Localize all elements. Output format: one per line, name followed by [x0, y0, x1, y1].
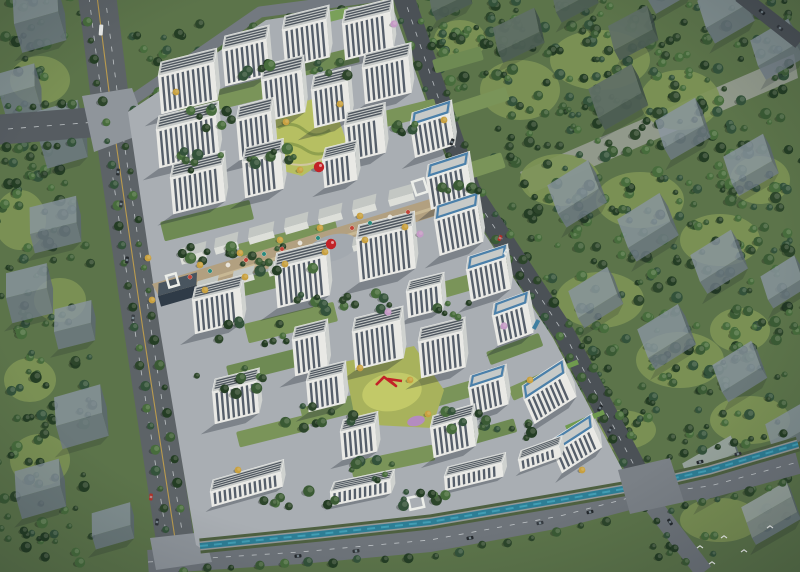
tree-highlight: [467, 27, 471, 31]
tree-highlight: [101, 97, 106, 102]
tree: [0, 199, 10, 209]
tree-highlight: [551, 275, 556, 280]
tree-highlight: [655, 407, 659, 411]
tree-highlight: [686, 52, 690, 56]
tree-highlight: [331, 409, 335, 413]
tree-highlight: [31, 174, 34, 177]
tree-highlight: [189, 254, 195, 260]
tree-highlight: [476, 26, 479, 29]
tree-highlight: [747, 307, 752, 312]
tree-highlight: [559, 143, 563, 147]
tree-highlight: [709, 390, 712, 393]
tree-highlight: [251, 252, 256, 257]
tree-highlight: [546, 80, 550, 84]
tree-highlight: [153, 336, 158, 341]
tree-highlight: [581, 344, 584, 347]
tree-highlight: [189, 107, 194, 112]
tree-highlight: [592, 16, 595, 19]
tree-highlight: [5, 143, 10, 148]
tree-highlight: [529, 131, 532, 134]
tree-highlight: [44, 423, 48, 427]
tree-highlight: [12, 159, 17, 164]
tree-highlight: [46, 142, 50, 146]
tree-highlight: [531, 122, 536, 127]
tree-highlight: [7, 514, 10, 517]
tree-highlight: [579, 152, 583, 156]
tree-highlight: [259, 562, 264, 567]
tree-highlight: [591, 347, 596, 352]
tree-highlight: [231, 251, 234, 254]
tree-highlight: [587, 337, 591, 341]
tree-highlight: [18, 202, 22, 206]
tree-highlight: [519, 103, 523, 107]
tree-highlight: [202, 257, 206, 261]
tree-highlight: [552, 299, 557, 304]
tree-highlight: [90, 38, 93, 41]
tree-highlight: [3, 495, 8, 500]
tree-highlight: [85, 242, 89, 246]
tree-highlight: [459, 36, 464, 41]
tree-highlight: [284, 418, 289, 423]
tree-highlight: [31, 531, 34, 534]
tree-highlight: [254, 160, 259, 165]
tree-highlight: [530, 293, 534, 297]
tree-highlight: [617, 237, 621, 241]
tree-highlight: [608, 390, 612, 394]
tree-highlight: [169, 433, 174, 438]
tree-highlight: [262, 262, 265, 265]
tree-highlight: [553, 290, 556, 293]
tree-highlight: [741, 201, 745, 205]
tree-highlight: [667, 373, 671, 377]
tree-highlight: [617, 399, 621, 403]
tree-highlight: [148, 288, 151, 291]
tree-highlight: [70, 139, 75, 144]
tree-highlight: [788, 310, 792, 314]
tree-highlight: [259, 267, 265, 273]
tree-highlight: [704, 533, 708, 537]
tree-highlight: [557, 243, 560, 246]
tree-highlight: [105, 119, 109, 123]
tree-highlight: [671, 434, 675, 438]
tree-highlight: [515, 8, 518, 11]
tree-highlight: [781, 86, 786, 91]
tree-highlight: [656, 109, 662, 115]
tree-highlight: [53, 531, 57, 535]
tree-highlight: [704, 343, 709, 348]
tree-highlight: [661, 43, 664, 46]
tree-highlight: [689, 3, 692, 6]
tree-highlight: [74, 357, 79, 362]
tree-highlight: [544, 110, 548, 114]
tree-highlight: [718, 162, 722, 166]
tree-highlight: [501, 20, 504, 23]
tree-highlight: [529, 107, 533, 111]
tree-highlight: [45, 383, 48, 386]
tree-highlight: [706, 220, 709, 223]
tree-highlight: [571, 113, 574, 116]
tree-highlight: [544, 314, 548, 318]
tree-highlight: [652, 393, 657, 398]
tree-highlight: [537, 92, 542, 97]
tree-highlight: [139, 345, 143, 349]
tree-highlight: [666, 533, 669, 536]
tree-highlight: [30, 415, 33, 418]
tree-highlight: [34, 373, 40, 379]
tree-highlight: [302, 424, 307, 429]
tree-highlight: [83, 381, 88, 386]
tree-highlight: [127, 283, 131, 287]
tree-highlight: [592, 394, 597, 399]
tree-highlight: [658, 554, 662, 558]
tree-highlight: [669, 455, 672, 458]
tree-highlight: [158, 361, 163, 366]
tree-highlight: [717, 497, 720, 500]
tree-highlight: [769, 205, 772, 208]
tree-highlight: [621, 292, 625, 296]
tree-highlight: [190, 244, 194, 248]
tree-highlight: [767, 255, 773, 261]
tree-highlight: [446, 91, 450, 95]
tree-highlight: [607, 47, 612, 52]
tree-highlight: [431, 43, 435, 47]
tree-highlight: [763, 435, 766, 438]
tree-highlight: [332, 560, 337, 565]
tree-highlight: [598, 175, 602, 179]
tree-highlight: [786, 229, 791, 234]
tree-highlight: [752, 226, 756, 230]
tree-highlight: [384, 557, 388, 561]
tree-highlight: [578, 113, 581, 116]
tree-highlight: [764, 109, 770, 115]
tree-highlight: [717, 64, 722, 69]
tree-highlight: [495, 212, 498, 215]
tree-highlight: [296, 297, 300, 301]
tree-highlight: [18, 106, 21, 109]
tree-highlight: [588, 21, 593, 26]
tree-highlight: [605, 518, 610, 523]
tree-highlight: [16, 442, 22, 448]
tree-highlight: [651, 270, 656, 275]
tree-highlight: [607, 32, 610, 35]
tree-highlight: [730, 125, 735, 130]
tree-highlight: [96, 81, 99, 84]
tree-highlight: [425, 87, 428, 90]
tree-highlight: [641, 125, 644, 128]
tree-highlight: [599, 372, 602, 375]
tree-highlight: [400, 19, 403, 22]
tree-highlight: [282, 333, 285, 336]
tree-highlight: [507, 76, 510, 79]
tree-highlight: [44, 101, 48, 105]
tree-highlight: [748, 488, 753, 493]
tree-highlight: [503, 72, 506, 75]
tree-highlight: [573, 233, 576, 236]
tree-highlight: [32, 164, 36, 168]
tree-highlight: [4, 159, 8, 163]
tree-highlight: [235, 389, 241, 395]
tree-highlight: [56, 144, 59, 147]
tree-highlight: [4, 33, 9, 38]
tree-highlight: [645, 147, 649, 151]
tree-highlight: [688, 181, 691, 184]
tree-highlight: [768, 397, 771, 400]
tree-highlight: [543, 23, 548, 28]
tree-highlight: [775, 336, 780, 341]
tree-highlight: [489, 41, 493, 45]
tree-highlight: [673, 93, 679, 99]
tree-highlight: [519, 272, 524, 277]
tree-highlight: [509, 154, 513, 158]
tree-highlight: [379, 305, 384, 310]
tree-highlight: [564, 166, 567, 169]
tree-highlight: [356, 556, 360, 560]
tree-highlight: [559, 110, 563, 114]
tree-highlight: [750, 437, 753, 440]
tree-highlight: [244, 366, 247, 369]
tree-highlight: [10, 387, 15, 392]
tree-highlight: [69, 524, 72, 527]
tree-highlight: [562, 103, 566, 107]
tree-highlight: [43, 74, 47, 78]
tree-highlight: [111, 162, 115, 166]
tree-highlight: [718, 97, 723, 102]
tree-highlight: [626, 148, 631, 153]
tree-highlight: [75, 506, 78, 509]
tree-highlight: [675, 190, 678, 193]
tree-highlight: [676, 34, 680, 38]
tree-highlight: [773, 183, 779, 189]
tree-highlight: [658, 50, 661, 53]
tree-highlight: [646, 456, 650, 460]
tree-highlight: [79, 559, 84, 564]
tree-highlight: [733, 345, 737, 349]
tree-highlight: [508, 143, 512, 147]
tree-highlight: [782, 480, 786, 484]
tree-highlight: [523, 181, 527, 185]
tree-highlight: [272, 338, 276, 342]
tree-highlight: [700, 100, 705, 105]
tree-highlight: [33, 145, 37, 149]
tree-highlight: [683, 20, 687, 24]
tree-highlight: [311, 403, 315, 407]
tree-highlight: [630, 432, 634, 436]
tree-highlight: [39, 459, 44, 464]
tree-highlight: [452, 33, 456, 37]
tree-highlight: [307, 558, 312, 563]
tree-highlight: [481, 542, 485, 546]
tree-highlight: [652, 401, 655, 404]
tree-highlight: [249, 157, 252, 160]
tree-highlight: [787, 11, 791, 15]
tree-highlight: [154, 467, 159, 472]
tree-highlight: [709, 174, 713, 178]
tree-highlight: [621, 252, 625, 256]
tree-highlight: [240, 374, 245, 379]
tree-highlight: [211, 104, 214, 107]
tree-highlight: [669, 37, 673, 41]
tree-highlight: [7, 104, 10, 107]
tree-highlight: [698, 407, 702, 411]
tree-highlight: [531, 536, 534, 539]
aerial-masterplan-render: [0, 0, 800, 572]
tree-highlight: [70, 255, 74, 259]
tree-highlight: [664, 176, 668, 180]
tree-highlight: [772, 90, 777, 95]
tree-highlight: [777, 375, 780, 378]
tree-highlight: [774, 317, 780, 323]
tree-highlight: [569, 76, 572, 79]
tree-highlight: [89, 355, 92, 358]
tree-highlight: [642, 410, 645, 413]
tree-highlight: [166, 409, 171, 414]
tree-highlight: [442, 39, 445, 42]
tree-highlight: [545, 276, 548, 279]
tree-highlight: [163, 505, 167, 509]
tree-highlight: [602, 379, 605, 382]
tree-highlight: [789, 239, 792, 242]
tree-highlight: [684, 503, 688, 507]
tree-highlight: [656, 519, 659, 522]
tree-highlight: [7, 536, 10, 539]
tree-highlight: [375, 289, 380, 294]
tree-highlight: [28, 459, 32, 463]
tree-highlight: [692, 362, 697, 367]
tree-highlight: [218, 336, 222, 340]
tree-highlight: [738, 343, 742, 347]
tree-highlight: [144, 382, 149, 387]
tree-highlight: [559, 48, 563, 52]
tree-highlight: [165, 527, 168, 530]
tree-highlight: [641, 383, 645, 387]
tree-highlight: [595, 73, 599, 77]
tree-highlight: [528, 138, 534, 144]
tree-highlight: [573, 124, 576, 127]
tree-highlight: [490, 16, 494, 20]
tree-highlight: [601, 261, 606, 266]
tree-highlight: [722, 188, 725, 191]
tree-highlight: [26, 415, 30, 419]
tree-highlight: [133, 324, 137, 328]
tree-highlight: [352, 411, 357, 416]
tree-highlight: [685, 559, 689, 563]
tree-highlight: [721, 171, 726, 176]
tree-highlight: [537, 146, 540, 149]
tree-highlight: [558, 70, 564, 76]
tree-highlight: [29, 153, 33, 157]
tree-highlight: [283, 560, 288, 565]
tree-highlight: [761, 319, 765, 323]
tree-highlight: [671, 76, 674, 79]
tree-highlight: [784, 372, 787, 375]
tree-highlight: [682, 86, 685, 89]
tree-highlight: [678, 213, 683, 218]
tree-highlight: [138, 217, 142, 221]
tree-highlight: [227, 321, 232, 326]
tree-highlight: [10, 266, 13, 269]
tree-highlight: [592, 364, 597, 369]
tree-highlight: [793, 323, 797, 327]
tree-highlight: [43, 430, 48, 435]
tree-highlight: [750, 279, 753, 282]
tree-highlight: [53, 258, 56, 261]
tree-highlight: [769, 120, 772, 123]
tree-highlight: [143, 46, 147, 50]
tree-highlight: [276, 267, 281, 272]
tree-highlight: [537, 235, 541, 239]
tree-highlight: [138, 362, 143, 367]
tree-highlight: [449, 76, 455, 82]
tree-highlight: [51, 315, 54, 318]
tree-highlight: [264, 341, 267, 344]
tree-highlight: [136, 33, 140, 37]
tree-highlight: [717, 445, 720, 448]
tree-highlight: [703, 153, 708, 158]
tree-highlight: [205, 125, 209, 129]
tree-highlight: [649, 109, 653, 113]
tree-highlight: [146, 405, 150, 409]
tree-highlight: [706, 425, 709, 428]
tree-highlight: [230, 116, 234, 120]
tree-highlight: [223, 385, 227, 389]
tree-highlight: [31, 351, 34, 354]
tree-highlight: [389, 303, 392, 306]
tree-highlight: [734, 330, 739, 335]
tree-highlight: [22, 259, 25, 262]
tree-highlight: [568, 94, 572, 98]
tree-highlight: [754, 325, 757, 328]
tree-highlight: [594, 31, 598, 35]
tree-highlight: [688, 73, 692, 77]
tree-highlight: [44, 533, 49, 538]
tree-highlight: [64, 181, 67, 184]
tree-highlight: [688, 68, 692, 72]
tree-highlight: [416, 62, 421, 67]
tree-highlight: [737, 42, 740, 45]
tree-highlight: [688, 425, 693, 430]
tree-highlight: [753, 205, 756, 208]
tree-highlight: [674, 545, 678, 549]
tree-highlight: [689, 222, 692, 225]
tree-highlight: [285, 339, 288, 342]
tree-highlight: [28, 370, 31, 373]
tree-highlight: [733, 439, 737, 443]
tree-highlight: [673, 244, 676, 247]
tree-highlight: [596, 57, 599, 60]
tree-highlight: [537, 205, 542, 210]
tree-highlight: [32, 104, 35, 107]
tree-highlight: [164, 385, 167, 388]
tree-highlight: [621, 206, 625, 210]
tree-highlight: [786, 186, 791, 191]
tree-highlight: [40, 411, 45, 416]
tree-highlight: [674, 82, 679, 87]
tree-highlight: [86, 18, 91, 23]
tree-highlight: [675, 365, 679, 369]
tree-highlight: [463, 73, 469, 79]
tree-highlight: [199, 20, 204, 25]
tree-highlight: [603, 325, 608, 330]
tree-highlight: [696, 323, 700, 327]
tree-highlight: [757, 238, 762, 243]
tree-highlight: [707, 78, 710, 81]
tree-highlight: [511, 112, 515, 116]
render-canvas: [0, 0, 800, 572]
tree-highlight: [420, 19, 423, 22]
tree-highlight: [151, 313, 155, 317]
tree-highlight: [176, 479, 181, 484]
tree-highlight: [578, 243, 584, 249]
